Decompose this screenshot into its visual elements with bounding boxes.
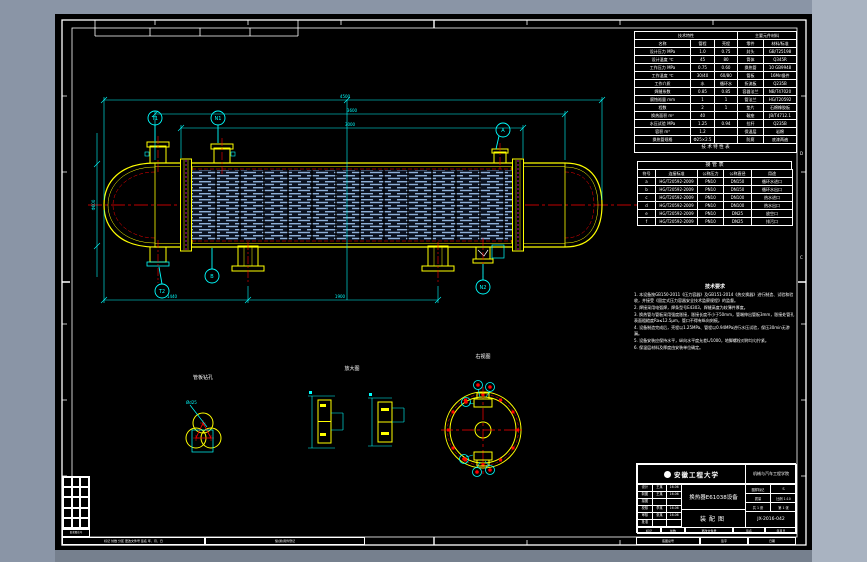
nozzle-header: 公称直径	[724, 170, 752, 178]
balloon-label-a: A	[501, 128, 505, 134]
table-cell: DN100	[724, 194, 752, 202]
girth-flange-left	[181, 159, 192, 251]
nozzle-table-body: aHG/T20592-2009PN10DN150循环水进口bHG/T20592-…	[638, 178, 793, 226]
table-cell: PN10	[698, 194, 724, 202]
balloon-label-t2: T2	[158, 289, 165, 295]
table-cell: f	[638, 218, 656, 226]
corner-revision-block	[62, 476, 90, 529]
roles-table: 设计王某16.06制图王某16.06描图校核李某16.06审核张某16.06批准	[637, 484, 682, 527]
zone-letter-1: D	[800, 151, 803, 156]
tb-bottom-cell: 年月日	[765, 527, 797, 534]
table-cell: 设计温度 ℃	[635, 56, 691, 64]
nozzle-n1	[211, 138, 235, 174]
notes-lines: 1. 本设备按GB150-2011《压力容器》及GB151-2014《热交换器》…	[634, 292, 796, 351]
table-cell: 16Mn锻件	[764, 72, 797, 80]
table-cell: 防腐	[738, 136, 764, 144]
balloon-label-t1: T1	[151, 116, 158, 122]
table-cell: 循环水	[715, 80, 738, 88]
table-cell: 换热面积 m²	[635, 112, 691, 120]
tb-bottom-cell: 更改文件号	[685, 527, 733, 534]
dim-diameter: Φ600	[91, 199, 96, 210]
table-cell	[652, 499, 667, 506]
table-cell: 0.75	[691, 64, 715, 72]
spec-header: 名称	[635, 40, 691, 48]
table-cell: DN100	[724, 202, 752, 210]
spec-group-left: 技术特性	[635, 32, 738, 40]
table-cell: 容器法兰	[738, 88, 764, 96]
table-cell: c	[638, 194, 656, 202]
dept-cell: 机械与汽车工程学院	[745, 464, 797, 484]
margin-cell: 底图总号	[636, 537, 700, 545]
drawing-code-cell: JX-2016-042	[745, 511, 797, 528]
detail-flange-section-1	[308, 391, 343, 448]
table-cell: HG/T20592	[764, 96, 797, 104]
table-cell: 2	[691, 104, 715, 112]
tb-bottom-cell: 签名	[733, 527, 765, 534]
table-cell: 排污口	[752, 218, 793, 226]
table-cell: DN25	[724, 218, 752, 226]
table-cell: 1.25	[691, 120, 715, 128]
table-cell: 校核	[638, 506, 653, 513]
table-cell: a	[638, 178, 656, 186]
girth-flange-right	[513, 159, 524, 251]
table-cell: NB/T47020	[764, 88, 797, 96]
table-cell: 40	[691, 112, 715, 120]
table-cell: d	[638, 202, 656, 210]
detail-gasket-label: 放大图	[344, 365, 359, 372]
table-cell: 0.60	[715, 64, 738, 72]
saddle-right	[422, 242, 454, 284]
table-cell: 60/80	[715, 72, 738, 80]
spec-group-right: 主要元件材料	[738, 32, 797, 40]
table-cell	[652, 520, 667, 527]
tb-bottom-cell: 处数	[661, 527, 685, 534]
bottom-margin-strip-right: 底图总号 签字 日期	[636, 537, 796, 545]
table-cell: 程数	[635, 104, 691, 112]
table-cell: 16.06	[667, 492, 682, 499]
nozzle-bottom-right	[473, 238, 504, 278]
detail-leader-text: Ød25	[186, 400, 197, 405]
margin-cell: 签字	[700, 537, 748, 545]
drawing-type-cell: 装配图	[681, 509, 746, 528]
dim-overall: 4500	[340, 94, 351, 99]
note-line: 2. 焊接采用电弧焊，焊条型号E4303，焊缝高度为较薄件厚度。	[634, 305, 796, 311]
table-cell: 换热管	[738, 64, 764, 72]
table-cell: 16.06	[667, 485, 682, 492]
table-cell: 批准	[638, 520, 653, 527]
note-line: 3. 换热管与管板采用强度胀接，胀接长度不小于50mm，管端伸出管板3mm，胀接…	[634, 312, 796, 324]
table-cell: 设计压力 MPa	[635, 48, 691, 56]
table-cell: DN25	[724, 210, 752, 218]
note-line: 5. 设备安装应保持水平，纵向水平度允差L/1000，地脚螺栓对称均匀拧紧。	[634, 338, 796, 344]
table-cell: 李某	[652, 506, 667, 513]
table-cell: 王某	[652, 485, 667, 492]
table-cell: 管板	[738, 72, 764, 80]
table-cell: 换热管规格	[635, 136, 691, 144]
vessel-assembly	[88, 136, 648, 284]
dim-tube-length: 3000	[345, 122, 356, 127]
table-cell: b	[638, 186, 656, 194]
org-cell: 安徽工程大学	[637, 464, 746, 484]
title-block: 安徽工程大学 机械与汽车工程学院 设计王某16.06制图王某16.06描图校核李…	[636, 463, 796, 533]
table-cell: 管法兰	[738, 96, 764, 104]
roles-area: 设计王某16.06制图王某16.06描图校核李某16.06审核张某16.06批准	[637, 484, 682, 527]
table-cell: 10 GB9948	[764, 64, 797, 72]
spec-footer: 技 术 特 性 表	[635, 144, 797, 153]
table-cell: 工作压力 MPa	[635, 64, 691, 72]
table-cell: 0.85	[691, 88, 715, 96]
table-cell: PN10	[698, 178, 724, 186]
table-cell: 石棉橡胶板	[764, 104, 797, 112]
table-cell: e	[638, 210, 656, 218]
table-cell: HG/T20592-2009	[656, 202, 698, 210]
margin-cell: 日期	[748, 537, 796, 545]
table-cell: 0.75	[715, 48, 738, 56]
table-cell: PN10	[698, 186, 724, 194]
table-cell: 热水出口	[752, 202, 793, 210]
table-cell: 0.94	[715, 120, 738, 128]
detail-end-view	[441, 381, 525, 477]
nozzle-a	[492, 143, 508, 170]
table-cell: 热水进口	[752, 194, 793, 202]
bottom-margin-strip-left: 标记 处数 分区 更改文件号 签名 年、月、日 借(通)用件登记	[62, 537, 365, 545]
table-cell: 16.06	[667, 513, 682, 520]
margin-cell: 借(通)用件登记	[205, 537, 365, 545]
balloon-label-n1: N1	[215, 116, 222, 122]
detail-flange-section-2	[368, 393, 404, 446]
table-cell: HG/T20592-2009	[656, 210, 698, 218]
table-cell: 1.0	[691, 48, 715, 56]
table-cell: Q345R	[764, 56, 797, 64]
cad-viewport: D C	[0, 0, 867, 562]
notes-title: 技术要求	[634, 283, 796, 290]
nozzle-table-title: 接 管 表	[637, 161, 792, 169]
table-cell: 设计	[638, 485, 653, 492]
table-cell: 制图	[638, 492, 653, 499]
university-logo	[664, 471, 671, 478]
table-cell: 腐蚀裕量 mm	[635, 96, 691, 104]
table-cell: 鞍座	[738, 112, 764, 120]
table-cell: 岩棉	[764, 128, 797, 136]
table-cell: HG/T20592-2009	[656, 194, 698, 202]
tb-bottom-cell: 标记	[637, 527, 661, 534]
table-cell	[715, 128, 738, 136]
detail-tube-layout-label: 管板钻孔	[193, 374, 213, 381]
table-cell: 筒体	[738, 56, 764, 64]
nozzle-header: 符号	[638, 170, 656, 178]
table-cell: DN150	[724, 186, 752, 194]
table-cell: 垫片	[738, 104, 764, 112]
dim-saddle-a: 1440	[167, 294, 178, 299]
table-cell: 1	[691, 96, 715, 104]
table-cell	[715, 112, 738, 120]
table-cell: 工作介质	[635, 80, 691, 88]
table-cell: 拉杆	[738, 120, 764, 128]
table-cell: HG/T20592-2009	[656, 178, 698, 186]
spec-table-body: 设计压力 MPa1.00.75封头GB/T25198设计温度 ℃4580筒体Q3…	[635, 48, 797, 144]
table-cell: PN10	[698, 210, 724, 218]
table-cell	[715, 136, 738, 144]
table-cell: 16.06	[667, 506, 682, 513]
table-cell: GB/T25198	[764, 48, 797, 56]
table-cell: 放空口	[752, 210, 793, 218]
table-cell: 1.2	[691, 128, 715, 136]
table-cell: HG/T20592-2009	[656, 218, 698, 226]
detail-tube-layout: Ød25	[186, 400, 221, 452]
table-cell: 焊缝系数	[635, 88, 691, 96]
org-name: 安徽工程大学	[674, 469, 719, 479]
spec-header: 材料/标准	[764, 40, 797, 48]
table-cell: HG/T20592-2009	[656, 186, 698, 194]
table-cell: 循环水进口	[752, 178, 793, 186]
corner-block-label: 旧底图总号	[62, 529, 90, 537]
balloon-label-b: B	[210, 274, 214, 280]
table-cell: 0.85	[715, 88, 738, 96]
table-cell: 水压试验 MPa	[635, 120, 691, 128]
table-cell	[667, 499, 682, 506]
title-block-bottom-row: 标记 处数 更改文件号 签名 年月日	[637, 527, 797, 534]
note-line: 6. 保温层材料及厚度由安装单位确定。	[634, 345, 796, 351]
table-cell: JB/T4712.1	[764, 112, 797, 120]
table-cell: Q235B	[764, 80, 797, 88]
nozzle-header: 公称压力	[698, 170, 724, 178]
nozzle-header: 用途	[752, 170, 793, 178]
detail-end-view-label: 右视图	[475, 353, 490, 360]
note-line: 4. 设备制造完成后，壳程以1.25MPa、管程以0.94MPa进行水压试验，保…	[634, 325, 796, 337]
spec-header: 壳程	[715, 40, 738, 48]
table-cell: 折流板	[738, 80, 764, 88]
balloon-label-n2: N2	[480, 285, 487, 291]
saddle-left	[232, 242, 264, 284]
table-cell: 张某	[652, 513, 667, 520]
table-cell: Q235B	[764, 120, 797, 128]
note-line: 1. 本设备按GB150-2011《压力容器》及GB151-2014《热交换器》…	[634, 292, 796, 304]
table-cell: 1	[715, 96, 738, 104]
spec-header: 零件	[738, 40, 764, 48]
margin-cell: 标记 处数 分区 更改文件号 签名 年、月、日	[62, 537, 205, 545]
table-cell: 描图	[638, 499, 653, 506]
table-cell: 30/40	[691, 72, 715, 80]
table-cell	[667, 520, 682, 527]
nozzle-table: 接 管 表 符号 连接标准 公称压力 公称直径 用途 aHG/T20592-20…	[637, 161, 792, 226]
table-cell: PN10	[698, 218, 724, 226]
table-cell: 1	[715, 104, 738, 112]
table-cell: DN150	[724, 178, 752, 186]
table-cell: Φ25×2.5	[691, 136, 715, 144]
spec-header: 管程	[691, 40, 715, 48]
table-cell: 封头	[738, 48, 764, 56]
table-cell: 45	[691, 56, 715, 64]
table-cell: 水	[691, 80, 715, 88]
table-cell: 王某	[652, 492, 667, 499]
table-cell: 保温层	[738, 128, 764, 136]
table-cell: 底漆两遍	[764, 136, 797, 144]
table-cell: 容积 m³	[635, 128, 691, 136]
dim-saddle-b: 1900	[335, 294, 346, 299]
table-cell: PN10	[698, 202, 724, 210]
zone-letter-2: C	[800, 255, 803, 260]
nozzle-header: 连接标准	[656, 170, 698, 178]
drawing-name-cell: 换热器E61038设备	[681, 484, 746, 510]
table-cell: 工作温度 ℃	[635, 72, 691, 80]
table-cell: 审核	[638, 513, 653, 520]
table-cell: 循环水出口	[752, 186, 793, 194]
table-cell: 80	[715, 56, 738, 64]
technical-notes: 技术要求 1. 本设备按GB150-2011《压力容器》及GB151-2014《…	[634, 283, 796, 352]
spec-table: 技术特性 主要元件材料 名称 管程 壳程 零件 材料/标准 设计压力 MPa1.…	[634, 31, 796, 153]
dim-tangent: 3600	[347, 108, 358, 113]
